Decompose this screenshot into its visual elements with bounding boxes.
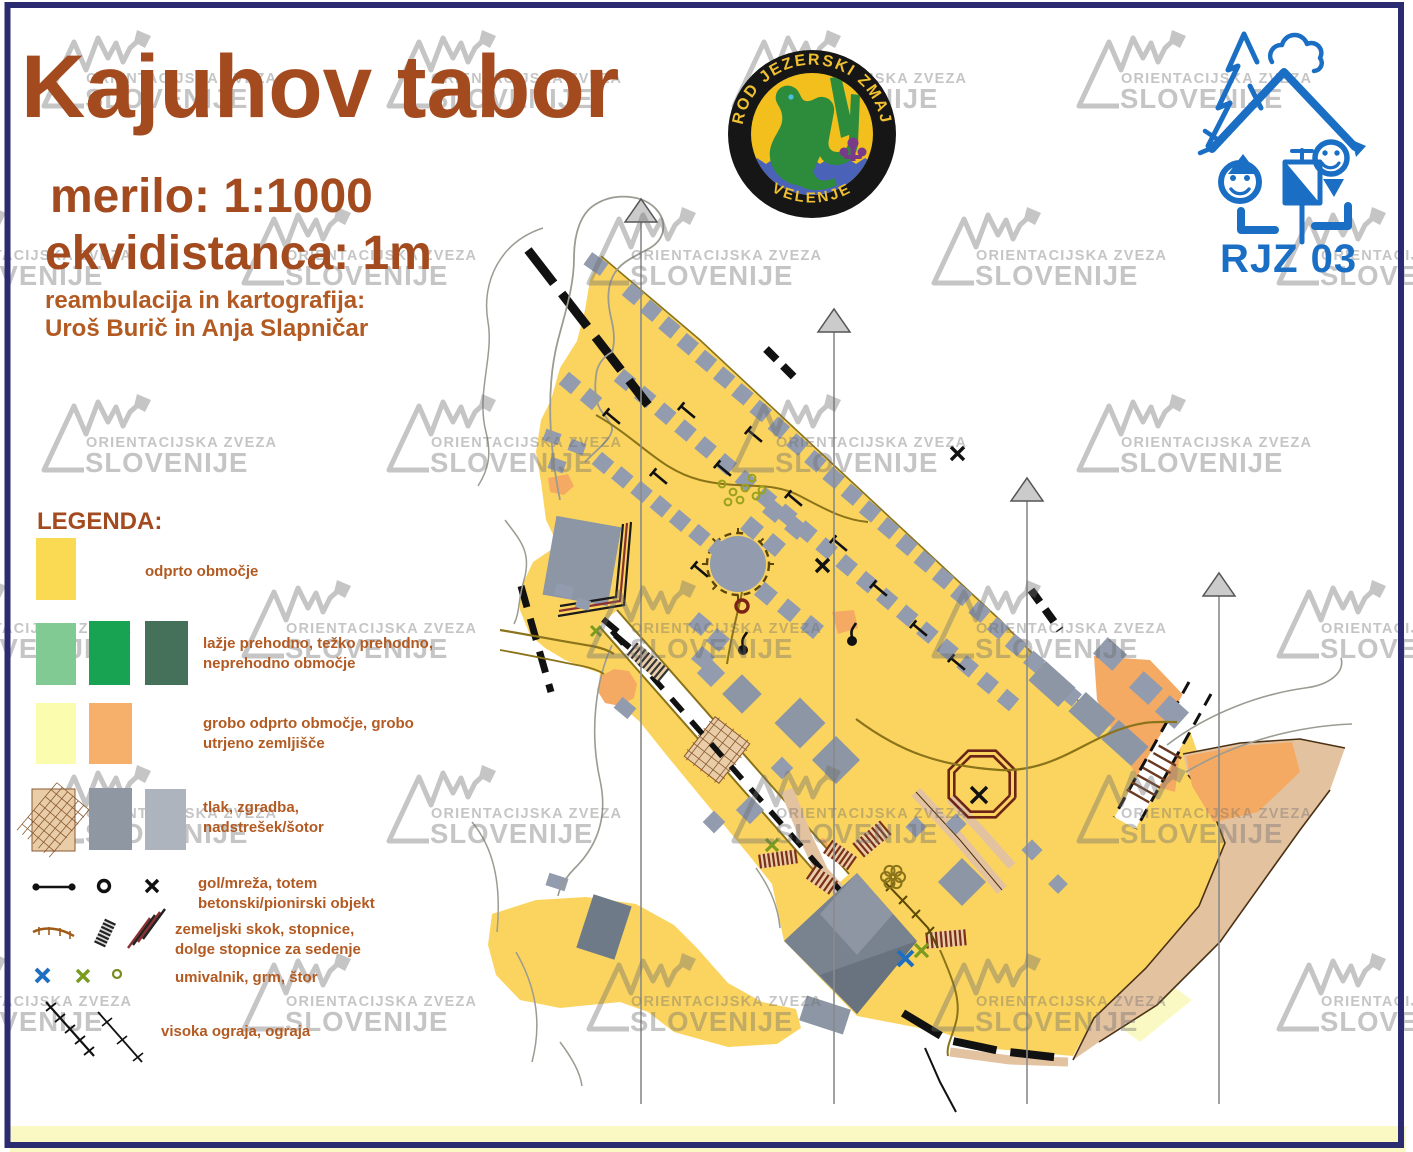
svg-text:zemeljski skok, stopnice,: zemeljski skok, stopnice,: [175, 921, 354, 938]
svg-text:LEGENDA:: LEGENDA:: [37, 508, 162, 535]
svg-text:lažje prehodno, težko prehodno: lažje prehodno, težko prehodno,: [203, 635, 433, 652]
svg-text:SLOVENIJE: SLOVENIJE: [975, 260, 1138, 291]
svg-text:odprto območje: odprto območje: [145, 563, 258, 580]
svg-text:gol/mreža, totem: gol/mreža, totem: [198, 875, 317, 892]
svg-text:utrjeno zemljišče: utrjeno zemljišče: [203, 735, 325, 752]
svg-text:SLOVENIJE: SLOVENIJE: [630, 260, 793, 291]
svg-text:SLOVENIJE: SLOVENIJE: [775, 818, 938, 849]
svg-text:SLOVENIJE: SLOVENIJE: [430, 447, 593, 478]
svg-text:SLOVENIJE: SLOVENIJE: [430, 818, 593, 849]
svg-text:SLOVENIJE: SLOVENIJE: [1120, 818, 1283, 849]
svg-text:grobo odprto območje, grobo: grobo odprto območje, grobo: [203, 715, 414, 732]
svg-text:SLOVENIJE: SLOVENIJE: [975, 633, 1138, 664]
svg-text:SLOVENIJE: SLOVENIJE: [0, 1006, 103, 1037]
svg-text:SLOVENIJE: SLOVENIJE: [630, 633, 793, 664]
svg-text:Uroš Burič in Anja Slapničar: Uroš Burič in Anja Slapničar: [45, 315, 368, 342]
svg-text:tlak, zgradba,: tlak, zgradba,: [203, 799, 299, 816]
svg-text:neprehodno območje: neprehodno območje: [203, 655, 356, 672]
svg-text:visoka ograja, ograja: visoka ograja, ograja: [161, 1023, 311, 1040]
svg-text:umivalnik, grm, štor: umivalnik, grm, štor: [175, 969, 318, 986]
svg-text:SLOVENIJE: SLOVENIJE: [85, 447, 248, 478]
svg-text:RJZ 03: RJZ 03: [1220, 237, 1357, 281]
svg-text:nadstrešek/šotor: nadstrešek/šotor: [203, 819, 324, 836]
svg-text:merilo: 1:1000: merilo: 1:1000: [50, 170, 373, 223]
svg-text:betonski/pionirski objekt: betonski/pionirski objekt: [198, 895, 375, 912]
svg-text:reambulacija in kartografija:: reambulacija in kartografija:: [45, 287, 365, 314]
svg-text:ekvidistanca: 1m: ekvidistanca: 1m: [45, 227, 432, 280]
svg-text:Kajuhov tabor: Kajuhov tabor: [21, 36, 619, 136]
svg-text:SLOVENIJE: SLOVENIJE: [975, 1006, 1138, 1037]
svg-text:SLOVENIJE: SLOVENIJE: [775, 447, 938, 478]
svg-text:dolge stopnice za sedenje: dolge stopnice za sedenje: [175, 941, 361, 958]
svg-text:SLOVENIJE: SLOVENIJE: [1120, 447, 1283, 478]
svg-text:SLOVENIJE: SLOVENIJE: [630, 1006, 793, 1037]
